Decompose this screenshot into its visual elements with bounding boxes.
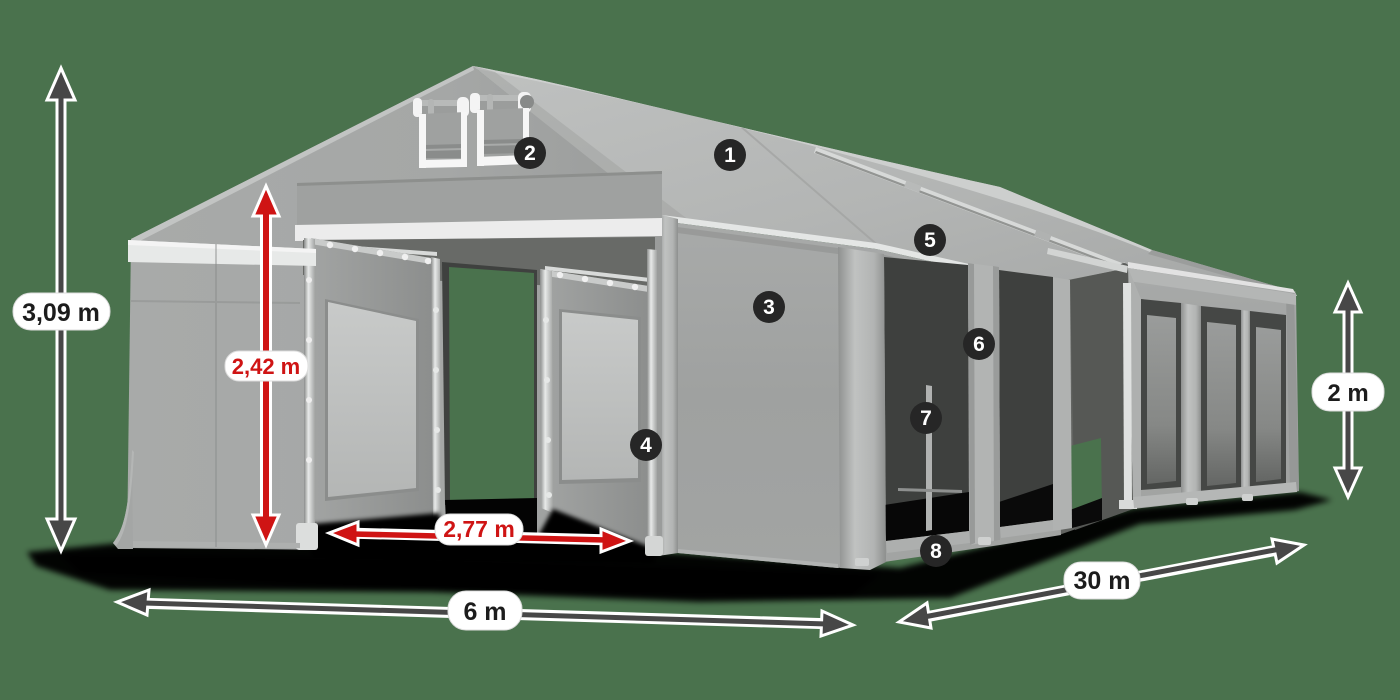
svg-text:3: 3 <box>763 296 775 319</box>
svg-text:2,42 m: 2,42 m <box>232 354 301 379</box>
svg-text:30 m: 30 m <box>1074 567 1131 595</box>
svg-text:2,77 m: 2,77 m <box>443 516 515 542</box>
svg-text:5: 5 <box>924 229 936 252</box>
svg-text:1: 1 <box>724 144 736 167</box>
svg-text:4: 4 <box>640 434 652 457</box>
svg-text:6: 6 <box>973 333 985 356</box>
svg-text:2: 2 <box>524 142 536 165</box>
svg-text:6 m: 6 m <box>463 598 506 626</box>
svg-text:3,09 m: 3,09 m <box>22 299 100 327</box>
svg-text:8: 8 <box>930 540 942 563</box>
svg-text:2 m: 2 m <box>1327 380 1368 407</box>
svg-text:7: 7 <box>920 407 932 430</box>
